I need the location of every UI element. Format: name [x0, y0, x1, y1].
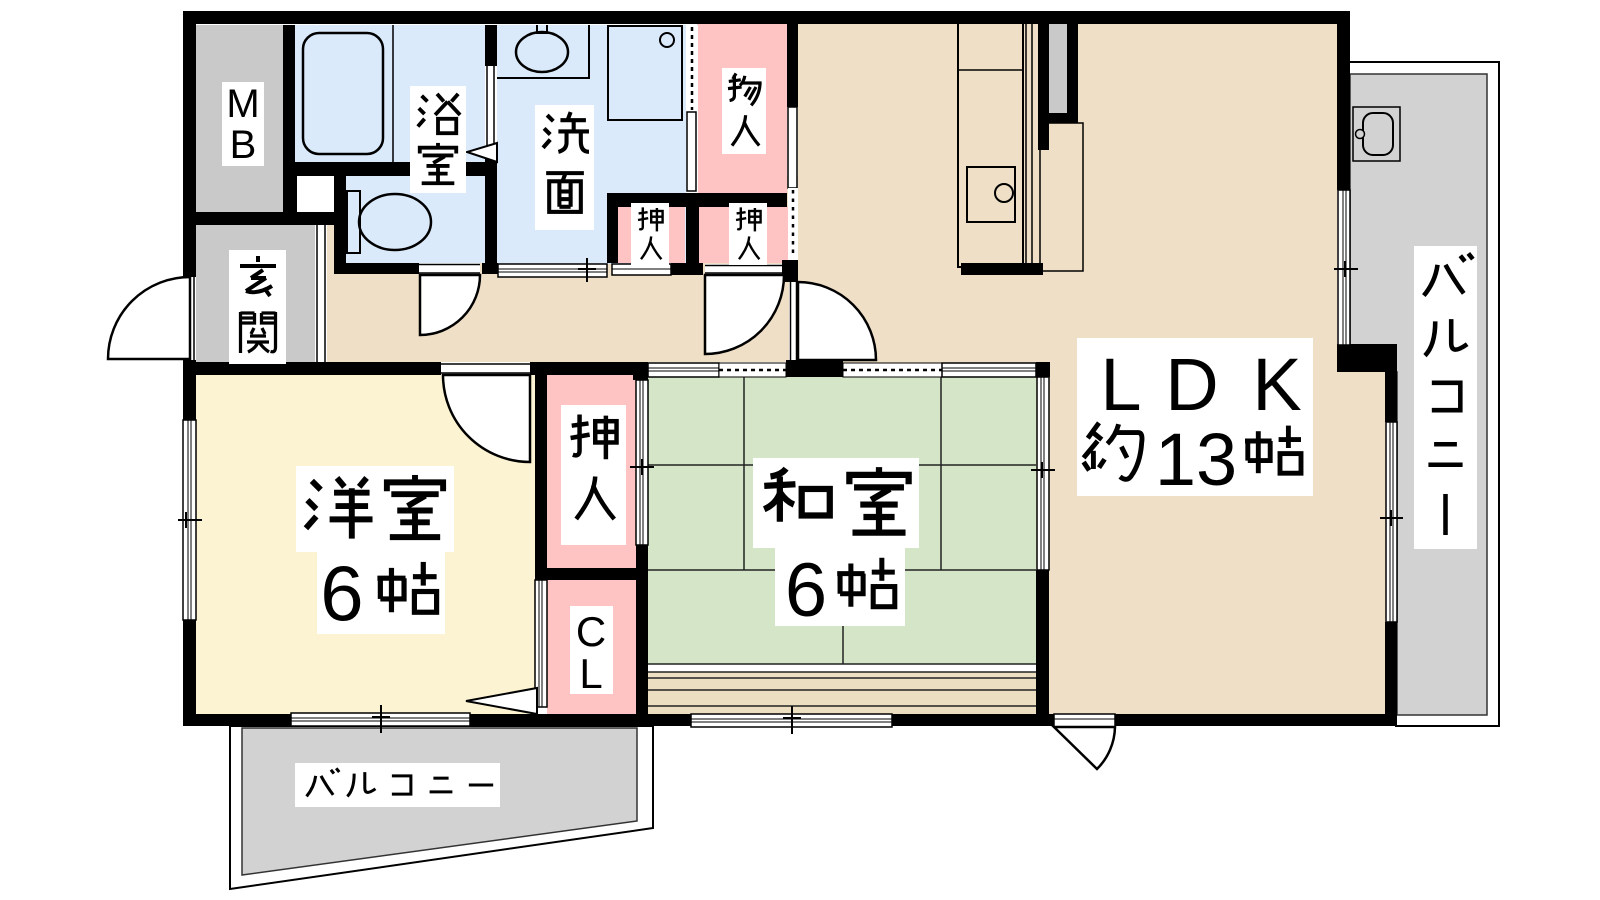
svg-text:M: M: [226, 82, 259, 126]
svg-text:L: L: [579, 650, 602, 697]
svg-text:B: B: [230, 123, 257, 167]
svg-text:13: 13: [1155, 418, 1237, 501]
svg-text:L: L: [1100, 343, 1141, 426]
svg-text:K: K: [1252, 343, 1301, 426]
svg-text:C: C: [576, 608, 606, 655]
svg-text:6: 6: [320, 549, 363, 637]
svg-text:6: 6: [785, 548, 827, 633]
svg-text:D: D: [1165, 343, 1218, 426]
